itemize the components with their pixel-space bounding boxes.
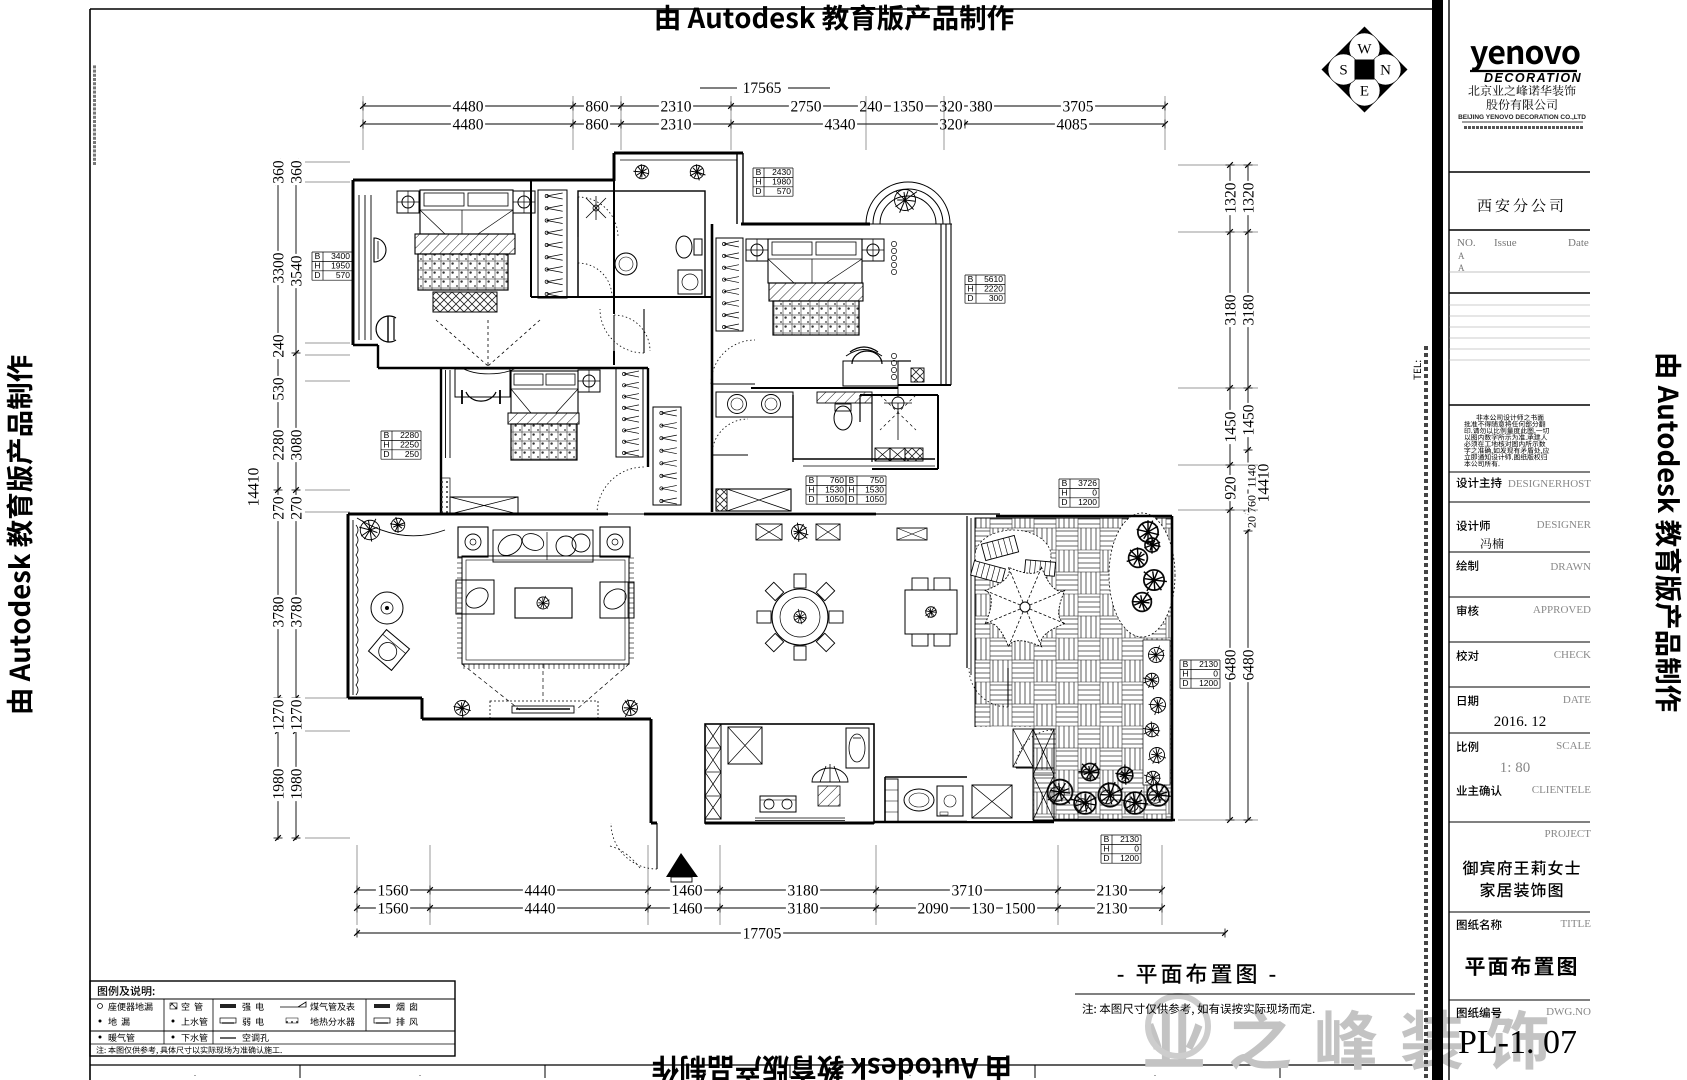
svg-text:3710: 3710 bbox=[952, 883, 983, 900]
svg-text:320: 320 bbox=[939, 117, 963, 134]
svg-text:6480: 6480 bbox=[1241, 649, 1258, 680]
svg-text:250: 250 bbox=[405, 449, 419, 459]
svg-text:2130: 2130 bbox=[1097, 883, 1128, 900]
svg-text:NO.: NO. bbox=[1457, 237, 1476, 249]
svg-text:DESIGNERHOST: DESIGNERHOST bbox=[1508, 478, 1591, 490]
svg-text:240: 240 bbox=[859, 99, 883, 116]
svg-text:14410: 14410 bbox=[1256, 463, 1273, 502]
svg-text:3540: 3540 bbox=[289, 255, 306, 286]
svg-text:1460: 1460 bbox=[672, 901, 703, 918]
svg-text:920: 920 bbox=[1223, 476, 1240, 500]
svg-text:W: W bbox=[1357, 42, 1372, 58]
svg-text:1320: 1320 bbox=[1241, 182, 1258, 213]
svg-text:4480: 4480 bbox=[453, 99, 484, 116]
svg-text:Issue: Issue bbox=[1494, 237, 1517, 249]
svg-text:2280: 2280 bbox=[271, 429, 288, 460]
svg-text:DATE: DATE bbox=[1563, 694, 1591, 706]
svg-text:1: 80: 1: 80 bbox=[1500, 760, 1530, 776]
svg-text:DRAWN: DRAWN bbox=[1550, 561, 1591, 573]
svg-text:380: 380 bbox=[969, 99, 993, 116]
svg-text:3180: 3180 bbox=[788, 883, 819, 900]
svg-text:1450: 1450 bbox=[1241, 404, 1258, 435]
svg-text:DWG.NO: DWG.NO bbox=[1546, 1006, 1591, 1018]
svg-text:D: D bbox=[1103, 853, 1109, 863]
svg-text:2016. 12: 2016. 12 bbox=[1494, 714, 1547, 730]
svg-text:.: . bbox=[419, 1068, 422, 1078]
svg-text:270: 270 bbox=[289, 496, 306, 520]
svg-text:360: 360 bbox=[289, 160, 306, 184]
svg-text:2310: 2310 bbox=[661, 117, 692, 134]
svg-text:D: D bbox=[967, 293, 973, 303]
svg-text:14410: 14410 bbox=[246, 467, 263, 506]
svg-text:.: . bbox=[1154, 1068, 1157, 1078]
svg-text:4085: 4085 bbox=[1057, 117, 1088, 134]
svg-text:1560: 1560 bbox=[378, 901, 409, 918]
svg-text:2090: 2090 bbox=[918, 901, 949, 918]
svg-text:300: 300 bbox=[989, 293, 1003, 303]
svg-text:DECORATION: DECORATION bbox=[1484, 71, 1582, 85]
svg-text:TITLE: TITLE bbox=[1560, 918, 1591, 930]
svg-text:D: D bbox=[848, 494, 854, 504]
svg-text:3780: 3780 bbox=[289, 596, 306, 627]
svg-text:1050: 1050 bbox=[865, 494, 884, 504]
svg-text:3180: 3180 bbox=[1241, 294, 1258, 325]
svg-text:D: D bbox=[755, 186, 761, 196]
svg-text:860: 860 bbox=[585, 117, 609, 134]
svg-text:1560: 1560 bbox=[378, 883, 409, 900]
svg-text:1500: 1500 bbox=[1005, 901, 1036, 918]
svg-text:SCALE: SCALE bbox=[1556, 740, 1591, 752]
svg-text:20: 20 bbox=[1244, 516, 1258, 528]
svg-text:360: 360 bbox=[271, 160, 288, 184]
svg-text:1350: 1350 bbox=[893, 99, 924, 116]
svg-text:PROJECT: PROJECT bbox=[1545, 828, 1592, 840]
svg-text:3080: 3080 bbox=[289, 429, 306, 460]
svg-text:530: 530 bbox=[271, 377, 288, 401]
svg-text:DESIGNER: DESIGNER bbox=[1537, 519, 1592, 531]
svg-text:6480: 6480 bbox=[1223, 649, 1240, 680]
svg-text:1460: 1460 bbox=[672, 883, 703, 900]
svg-text:1270: 1270 bbox=[271, 699, 288, 730]
svg-text:4480: 4480 bbox=[453, 117, 484, 134]
svg-text:A: A bbox=[1458, 263, 1465, 273]
svg-text:860: 860 bbox=[585, 99, 609, 116]
svg-text:270: 270 bbox=[271, 496, 288, 520]
svg-text:D: D bbox=[383, 449, 389, 459]
svg-text:D: D bbox=[314, 270, 320, 280]
svg-text:D: D bbox=[808, 494, 814, 504]
svg-text:D: D bbox=[1061, 497, 1067, 507]
svg-text:1320: 1320 bbox=[1223, 182, 1240, 213]
svg-text:4440: 4440 bbox=[525, 883, 556, 900]
svg-text:1980: 1980 bbox=[271, 768, 288, 799]
svg-text:1200: 1200 bbox=[1120, 853, 1139, 863]
svg-text:CLIENTELE: CLIENTELE bbox=[1532, 784, 1592, 796]
svg-text:570: 570 bbox=[777, 186, 791, 196]
svg-text:3180: 3180 bbox=[788, 901, 819, 918]
svg-text:D: D bbox=[1182, 678, 1188, 688]
svg-text:2130: 2130 bbox=[1097, 901, 1128, 918]
svg-text:1200: 1200 bbox=[1078, 497, 1097, 507]
svg-text:17565: 17565 bbox=[743, 80, 782, 97]
svg-text:3705: 3705 bbox=[1063, 99, 1094, 116]
svg-text:3780: 3780 bbox=[271, 596, 288, 627]
svg-text:240: 240 bbox=[271, 334, 288, 358]
svg-text:CHECK: CHECK bbox=[1554, 649, 1591, 661]
svg-text:3300: 3300 bbox=[271, 252, 288, 283]
svg-text:2310: 2310 bbox=[661, 99, 692, 116]
svg-text:3180: 3180 bbox=[1223, 294, 1240, 325]
svg-text:BEIJING YENOVO DECORATION CO.,: BEIJING YENOVO DECORATION CO.,LTD bbox=[1458, 114, 1586, 121]
svg-text:130: 130 bbox=[971, 901, 995, 918]
svg-text:4440: 4440 bbox=[525, 901, 556, 918]
svg-text:17705: 17705 bbox=[743, 926, 782, 943]
svg-text:1050: 1050 bbox=[825, 494, 844, 504]
svg-text:.: . bbox=[194, 1068, 197, 1078]
svg-text:2750: 2750 bbox=[791, 99, 822, 116]
svg-text:1980: 1980 bbox=[289, 768, 306, 799]
svg-text:APPROVED: APPROVED bbox=[1533, 604, 1591, 616]
svg-text:A: A bbox=[1458, 251, 1465, 261]
svg-text:E: E bbox=[1360, 84, 1369, 100]
svg-text:4340: 4340 bbox=[825, 117, 856, 134]
svg-text:S: S bbox=[1339, 63, 1347, 79]
svg-text:N: N bbox=[1380, 63, 1391, 79]
svg-text:1200: 1200 bbox=[1199, 678, 1218, 688]
svg-text:1450: 1450 bbox=[1223, 411, 1240, 442]
svg-text:320: 320 bbox=[939, 99, 963, 116]
svg-text:PL-1. 07: PL-1. 07 bbox=[1458, 1024, 1577, 1061]
svg-text:570: 570 bbox=[336, 270, 350, 280]
svg-text:1270: 1270 bbox=[289, 699, 306, 730]
svg-text:Date: Date bbox=[1568, 237, 1589, 249]
